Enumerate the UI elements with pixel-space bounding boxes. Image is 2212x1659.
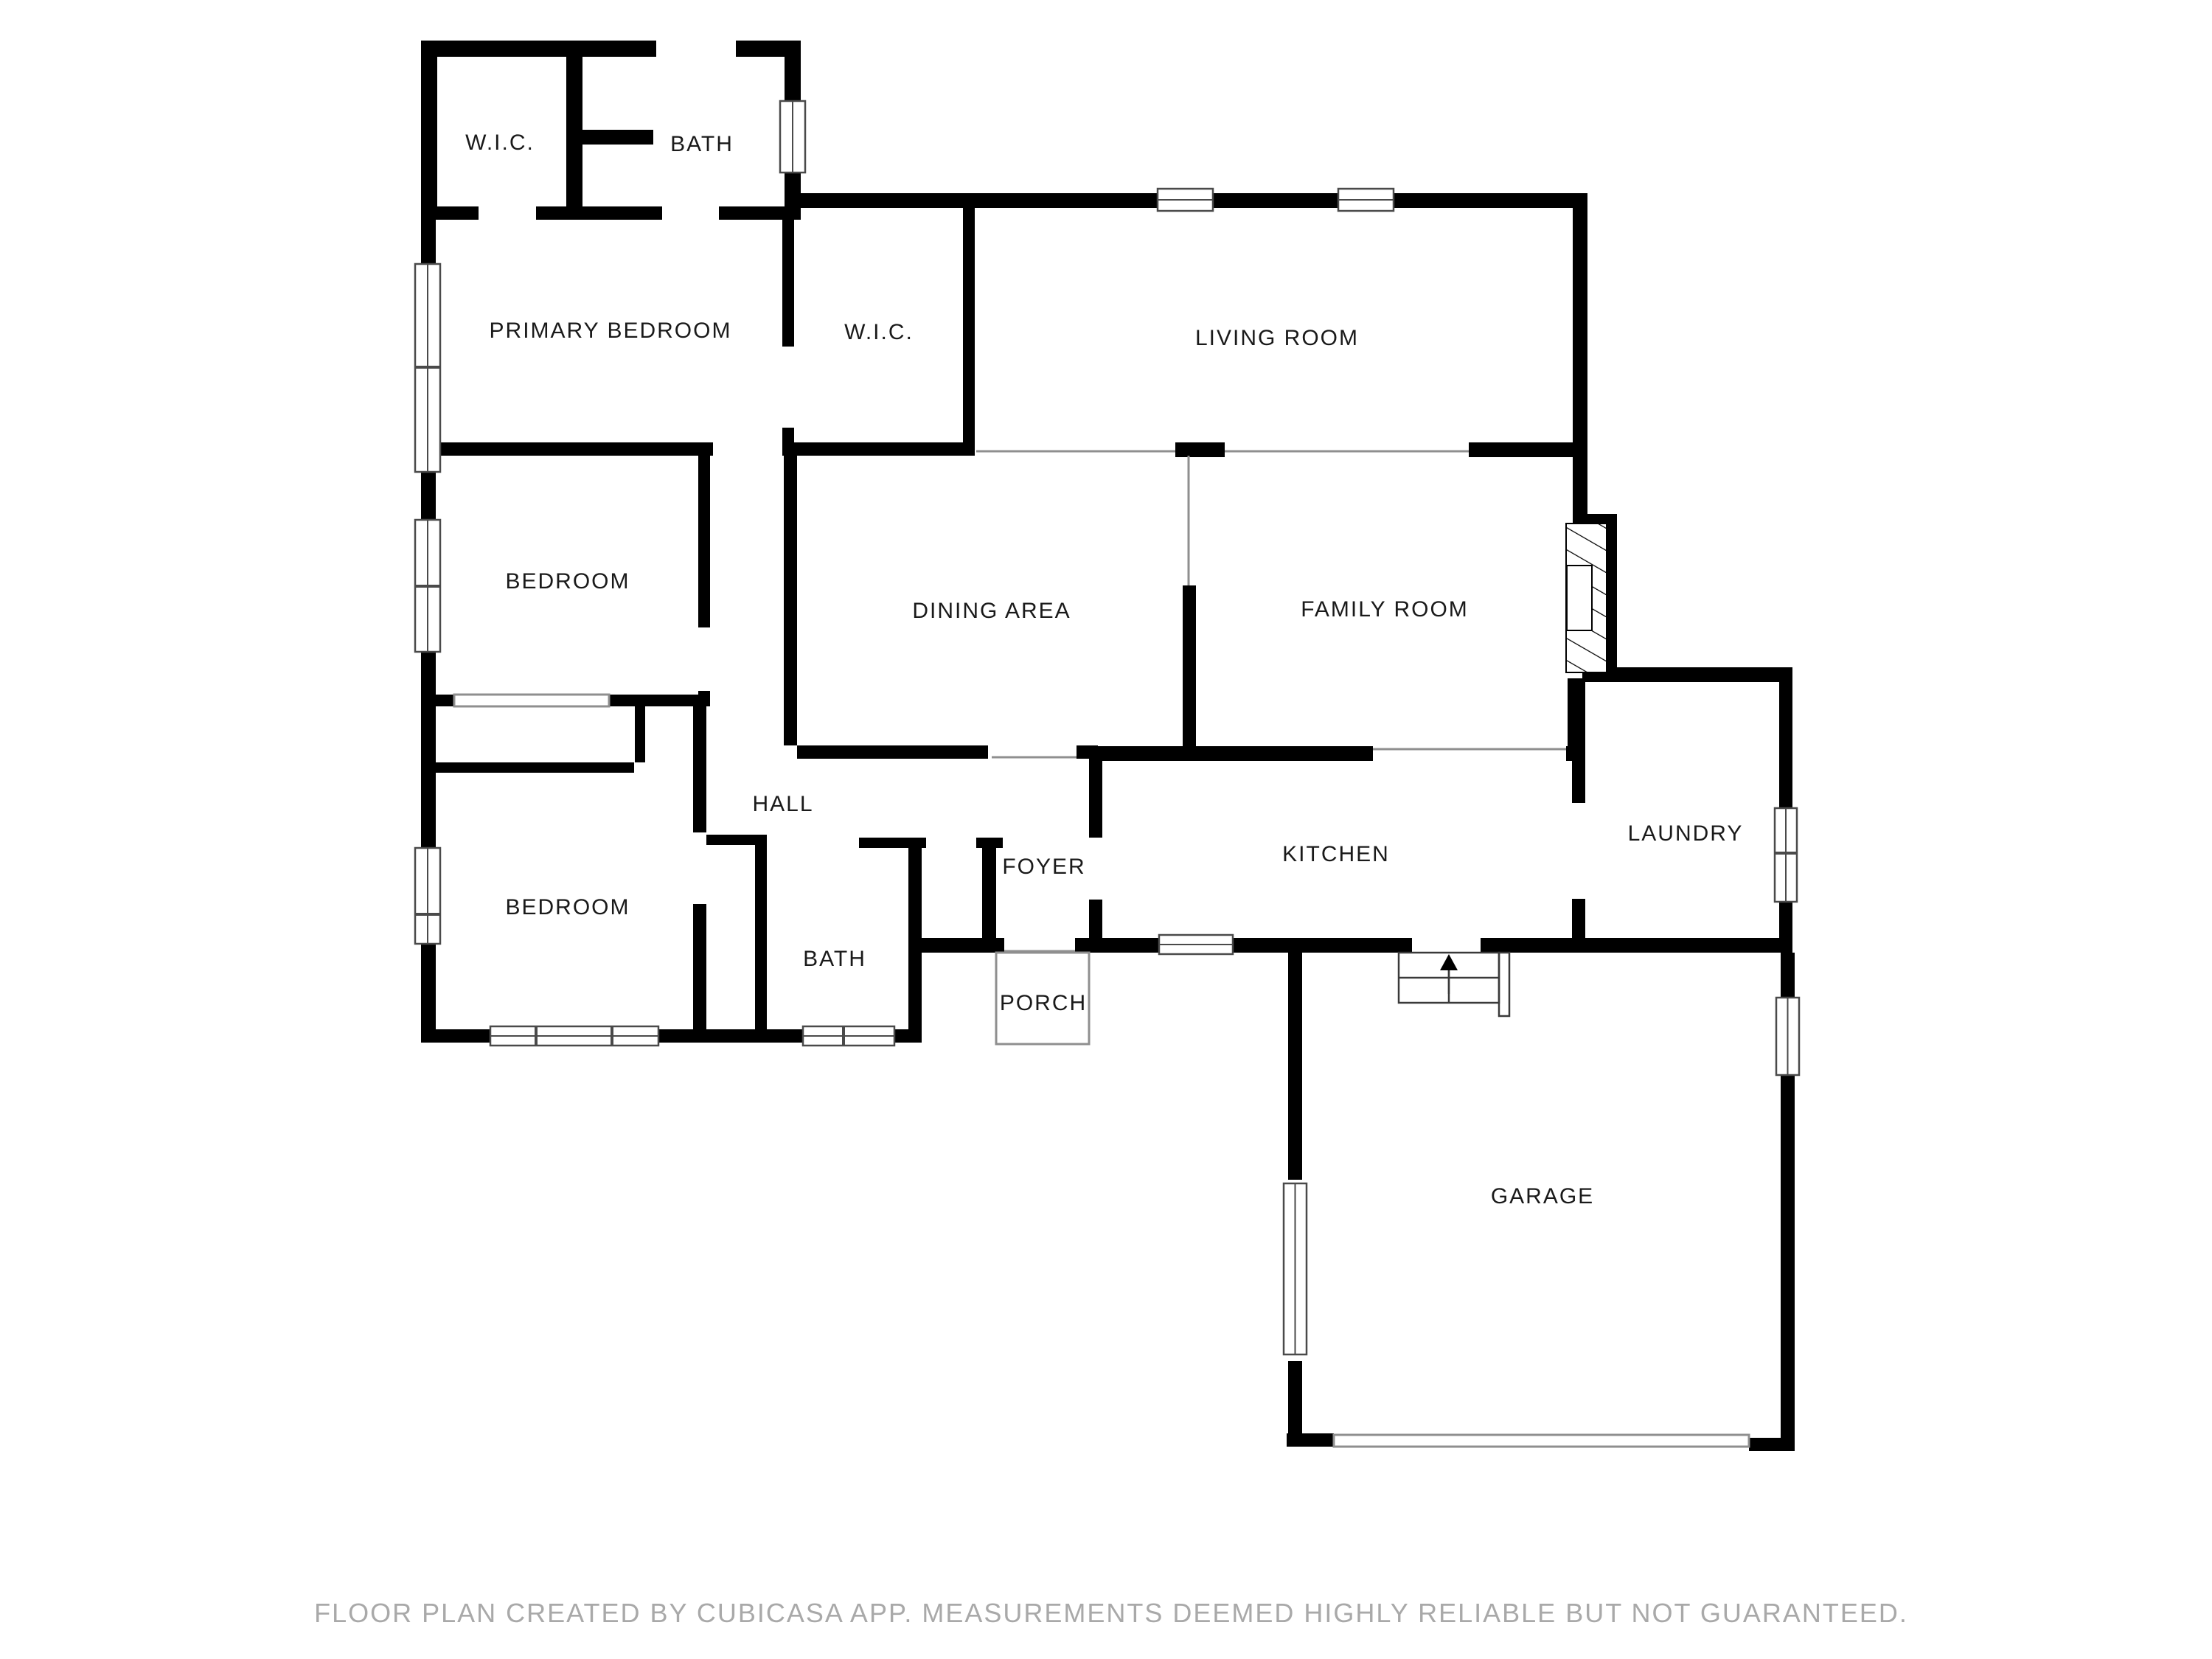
wall-segment <box>1749 1438 1795 1451</box>
room-label-wic2: W.I.C. <box>844 320 914 344</box>
window-symbol <box>1284 1183 1307 1354</box>
wall-segment <box>566 57 582 209</box>
wall-segment <box>582 130 653 145</box>
wall-segment <box>698 456 710 627</box>
window-symbol <box>415 264 440 472</box>
wall-segment <box>1481 938 1792 953</box>
room-label-bedroom2: BEDROOM <box>505 895 630 919</box>
closet-sliding-door <box>454 695 609 706</box>
room-label-bath2: BATH <box>803 947 866 971</box>
wall-segment <box>434 762 634 773</box>
window-symbol <box>1776 998 1799 1075</box>
wall-segment <box>693 773 706 832</box>
wall-segment <box>784 456 797 745</box>
wall-segment <box>1075 938 1159 953</box>
wall-segment <box>421 944 436 1043</box>
wall-segment <box>421 1029 490 1043</box>
wall-segment <box>1288 953 1302 1180</box>
wall-segment <box>1288 1361 1302 1445</box>
wall-segment <box>1394 193 1587 208</box>
room-label-bath1: BATH <box>670 132 734 156</box>
wall-segment <box>698 691 710 706</box>
wall-segment <box>635 706 645 762</box>
wall-segment <box>1089 754 1102 838</box>
wall-segment <box>1183 585 1196 759</box>
room-label-foyer: FOYER <box>1002 855 1085 879</box>
wall-segment <box>1781 1075 1795 1451</box>
wall-segment <box>1098 746 1373 761</box>
window-symbol <box>415 520 440 652</box>
wall-segment <box>609 695 698 706</box>
room-label-kitchen: KITCHEN <box>1282 842 1390 866</box>
wall-segment <box>536 206 662 220</box>
wall-segment <box>1469 442 1573 457</box>
wall-segment <box>693 706 706 773</box>
wall-segment <box>1213 193 1338 208</box>
room-label-family: FAMILY ROOM <box>1301 597 1469 622</box>
garage-door <box>1334 1435 1749 1447</box>
wall-segment <box>801 193 1158 208</box>
wall-segment <box>1779 902 1792 953</box>
wall-segment <box>1582 667 1792 682</box>
footer-disclaimer: FLOOR PLAN CREATED BY CUBICASA APP. MEAS… <box>314 1598 1908 1628</box>
window-symbol <box>1775 808 1797 902</box>
window-symbol <box>490 1026 658 1046</box>
wall-segment <box>755 835 767 1029</box>
window-symbol <box>1338 189 1394 211</box>
room-label-wic1: W.I.C. <box>465 131 535 155</box>
wall-segment <box>421 206 479 220</box>
wall-segment <box>1077 745 1098 759</box>
wall-segment <box>421 442 713 456</box>
wall-segment <box>434 695 454 706</box>
window-symbol <box>415 848 440 944</box>
wall-segment <box>1573 193 1587 514</box>
wall-segment <box>693 904 706 1029</box>
wall-segment <box>421 472 436 520</box>
room-label-bedroom1: BEDROOM <box>505 569 630 594</box>
wall-segment <box>421 41 656 57</box>
room-label-hall: HALL <box>752 792 813 816</box>
wall-segment <box>894 1029 922 1043</box>
wall-segment <box>1175 442 1225 457</box>
window-symbol <box>1158 189 1213 211</box>
wall-segment <box>421 41 437 220</box>
wall-segment <box>658 1029 803 1043</box>
wall-segment <box>782 442 975 456</box>
room-label-primary: PRIMARY BEDROOM <box>490 319 732 343</box>
room-label-garage: GARAGE <box>1491 1184 1594 1208</box>
wall-segment <box>421 220 436 264</box>
wall-segment <box>785 57 801 101</box>
page-background <box>0 0 2212 1659</box>
wall-segment <box>797 745 988 759</box>
window-symbol <box>780 101 805 173</box>
wall-segment <box>1781 953 1795 998</box>
wall-segment <box>908 938 1004 953</box>
wall-segment <box>782 208 794 347</box>
fireplace <box>1566 524 1607 672</box>
room-label-living: LIVING ROOM <box>1195 326 1359 350</box>
window-symbol <box>803 1026 894 1046</box>
wall-segment <box>963 208 975 444</box>
wall-segment <box>1089 900 1102 939</box>
wall-segment <box>1572 682 1585 803</box>
wall-segment <box>421 652 436 848</box>
wall-segment <box>782 428 794 444</box>
wall-segment <box>859 838 926 848</box>
room-label-porch: PORCH <box>1000 991 1087 1015</box>
wall-segment <box>1233 938 1412 953</box>
wall-segment <box>1572 899 1585 939</box>
wall-segment <box>736 41 801 57</box>
window-symbol <box>1159 935 1233 954</box>
floor-plan-canvas: W.I.C. BATH PRIMARY BEDROOM W.I.C. LIVIN… <box>0 0 2212 1659</box>
room-label-laundry: LAUNDRY <box>1628 821 1744 846</box>
wall-segment <box>1779 678 1792 808</box>
wall-segment <box>982 838 996 939</box>
room-label-dining: DINING AREA <box>912 599 1071 623</box>
wall-segment <box>1287 1433 1334 1447</box>
